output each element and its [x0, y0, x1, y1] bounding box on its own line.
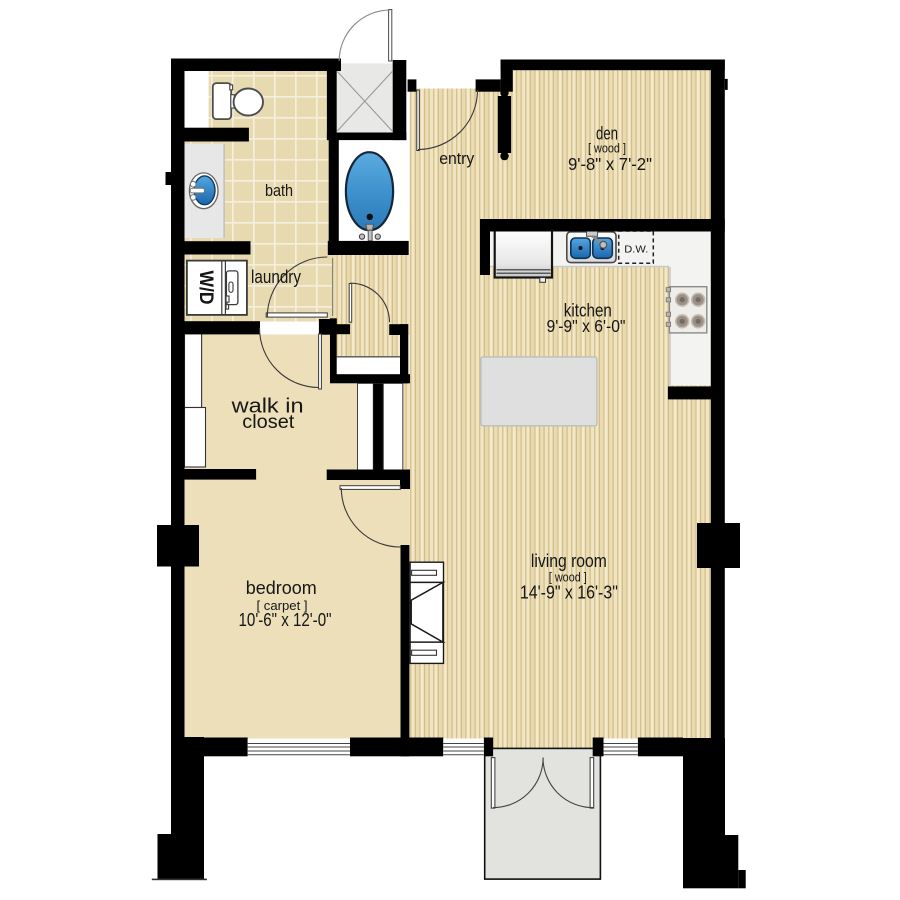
svg-text:9'-9" x 6'-0": 9'-9" x 6'-0" — [547, 316, 626, 336]
svg-text:bath: bath — [265, 181, 293, 200]
svg-text:W/D: W/D — [195, 271, 216, 305]
svg-text:entry: entry — [439, 149, 474, 168]
svg-text:D.W.: D.W. — [624, 244, 648, 256]
svg-text:bedroom: bedroom — [246, 577, 317, 598]
svg-text:14'-9" x 16'-3": 14'-9" x 16'-3" — [520, 583, 618, 603]
svg-text:closet: closet — [242, 412, 295, 433]
svg-text:living room: living room — [531, 550, 607, 571]
svg-text:laundry: laundry — [251, 267, 301, 287]
svg-text:den: den — [596, 123, 618, 144]
svg-text:10'-6" x 12'-0": 10'-6" x 12'-0" — [239, 610, 332, 630]
svg-text:9'-8" x 7'-2": 9'-8" x 7'-2" — [568, 154, 652, 174]
